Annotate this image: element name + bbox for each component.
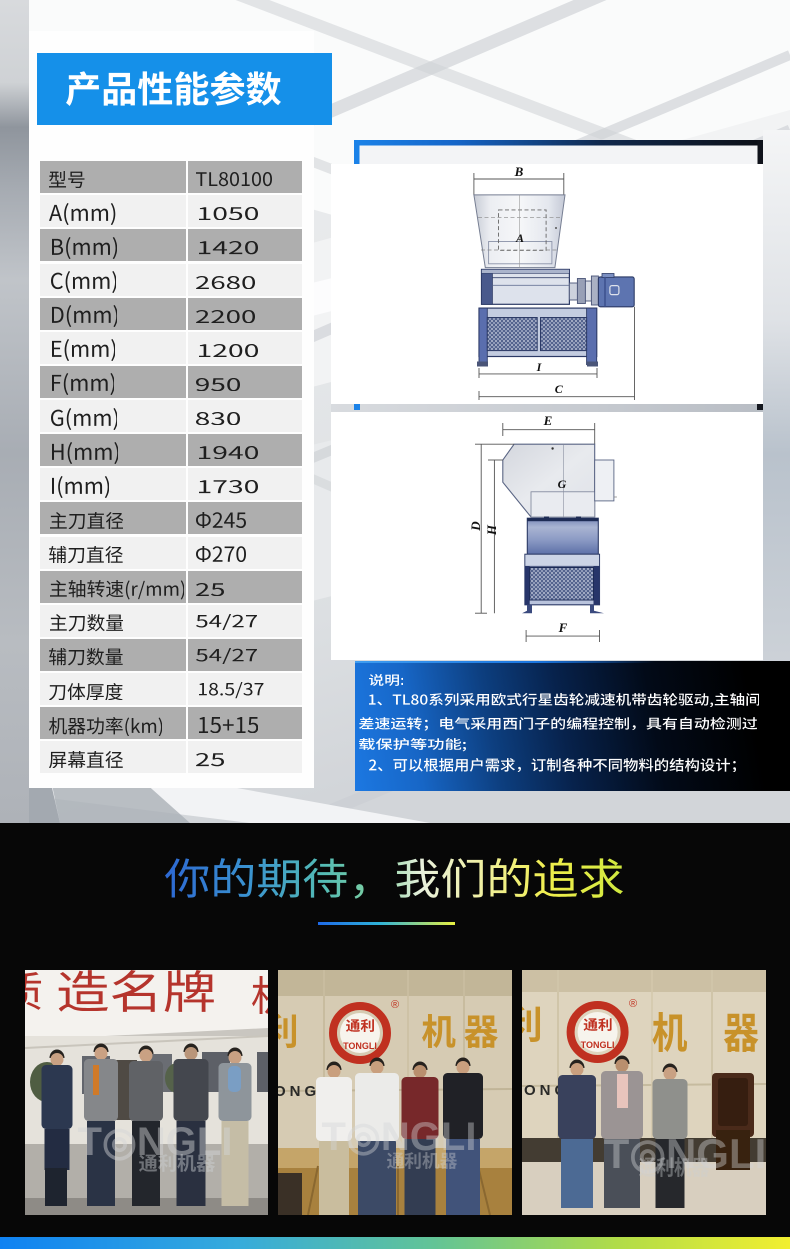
svg-text:T◎NGLI: T◎NGLI xyxy=(78,1120,233,1164)
svg-text:D: D xyxy=(468,521,483,532)
svg-text:B: B xyxy=(514,164,524,179)
svg-text:TONGLI: TONGLI xyxy=(581,1040,615,1050)
svg-text:E: E xyxy=(543,413,553,428)
svg-text:®: ® xyxy=(391,999,399,1011)
svg-text:C: C xyxy=(555,382,564,396)
svg-text:F: F xyxy=(558,620,568,635)
svg-text:®: ® xyxy=(629,998,637,1010)
svg-text:G: G xyxy=(558,477,567,491)
svg-text:H: H xyxy=(484,524,499,536)
svg-text:ONG: ONG xyxy=(278,1083,320,1100)
svg-text:T◎NGLI: T◎NGLI xyxy=(322,1115,477,1159)
svg-text:A: A xyxy=(515,231,524,245)
svg-text:TONGLI: TONGLI xyxy=(343,1041,377,1051)
svg-text:I: I xyxy=(536,360,543,374)
svg-text:T◎NGLI: T◎NGLI xyxy=(604,1130,766,1177)
